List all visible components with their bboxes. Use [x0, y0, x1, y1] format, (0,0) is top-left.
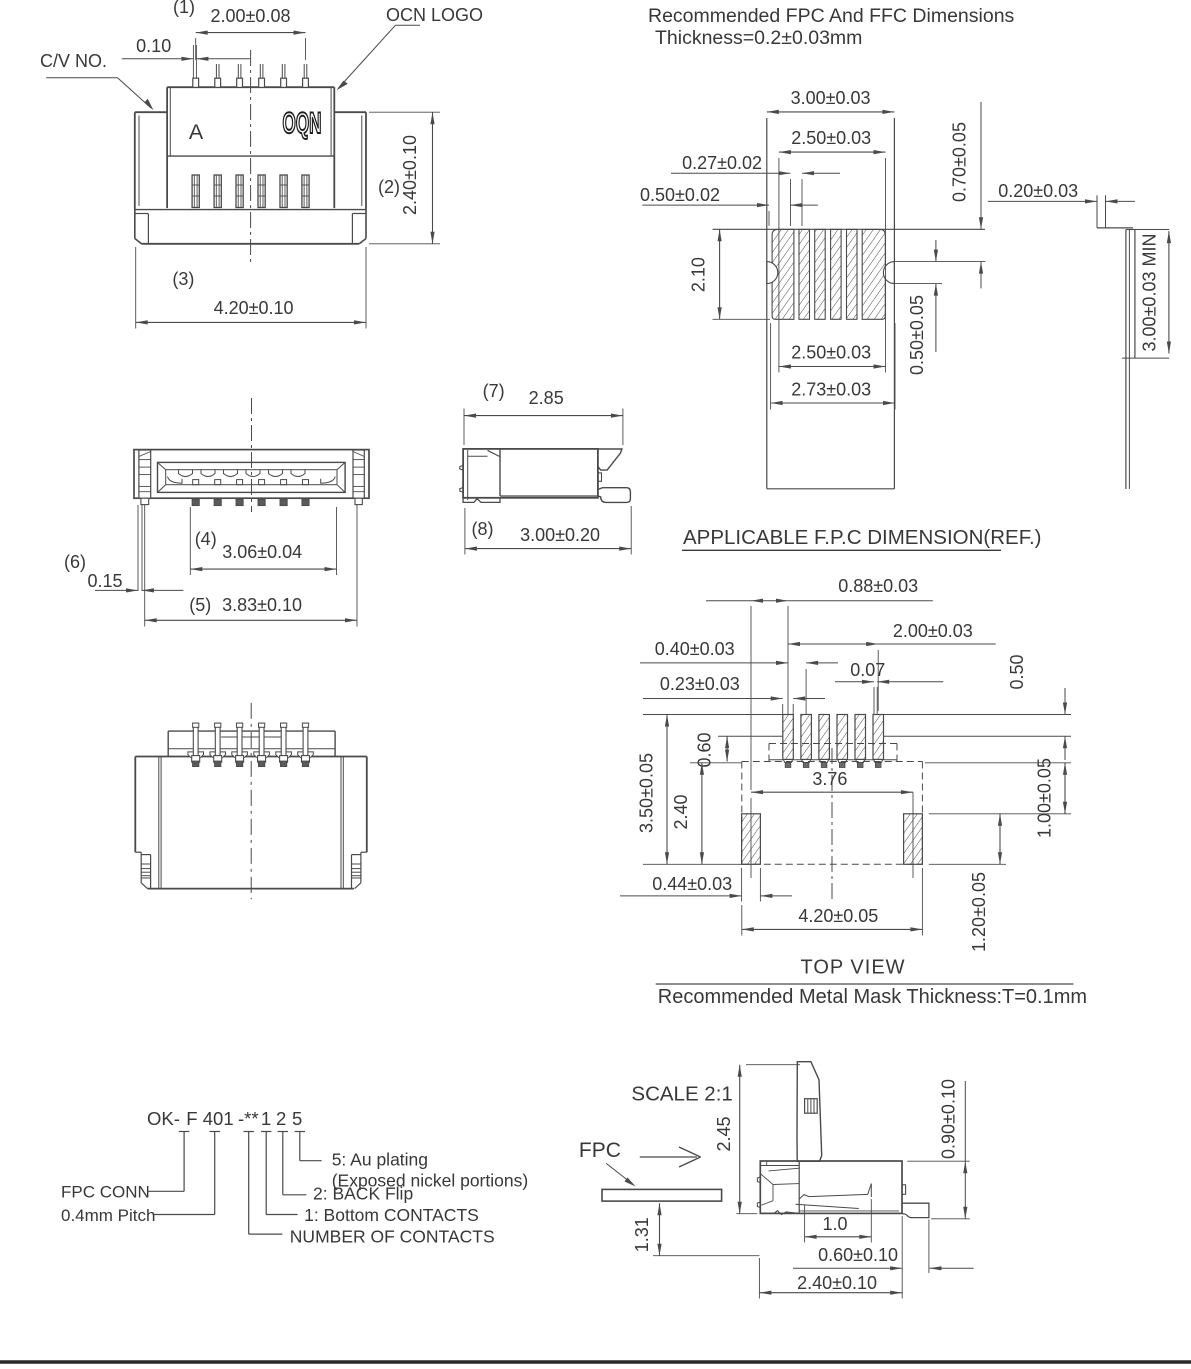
svg-text:1: Bottom CONTACTS: 1: Bottom CONTACTS [304, 1205, 479, 1225]
svg-text:0.50±0.02: 0.50±0.02 [640, 185, 720, 205]
svg-text:(7): (7) [483, 381, 505, 401]
svg-text:SCALE 2:1: SCALE 2:1 [631, 1082, 732, 1105]
svg-text:0.90±0.10: 0.90±0.10 [939, 1079, 959, 1159]
svg-text:3.06±0.04: 3.06±0.04 [222, 542, 302, 562]
svg-text:3.50±0.05: 3.50±0.05 [637, 753, 657, 833]
svg-text:3.00±0.03: 3.00±0.03 [791, 88, 871, 108]
svg-text:Recommended Metal Mask Thickne: Recommended Metal Mask Thickness:T=0.1mm [658, 986, 1087, 1008]
svg-text:0.15: 0.15 [87, 571, 122, 591]
svg-text:TOP VIEW: TOP VIEW [800, 957, 905, 979]
svg-text:1: 1 [261, 1108, 271, 1129]
svg-text:FPC CONN: FPC CONN [61, 1183, 150, 1202]
svg-text:F 401: F 401 [186, 1108, 233, 1129]
svg-text:2.40: 2.40 [671, 794, 691, 829]
svg-text:0.88±0.03: 0.88±0.03 [838, 576, 918, 596]
svg-text:0.60: 0.60 [694, 732, 714, 767]
svg-text:3.00±0.20: 3.00±0.20 [520, 525, 600, 545]
svg-text:2: 2 [276, 1108, 286, 1129]
svg-text:0.50±0.05: 0.50±0.05 [907, 295, 927, 375]
svg-text:0.27±0.02: 0.27±0.02 [682, 153, 762, 173]
svg-text:Recommended FPC And FFC Dimens: Recommended FPC And FFC Dimensions [648, 5, 1015, 27]
svg-text:C/V NO.: C/V NO. [40, 51, 107, 71]
svg-text:0.20±0.03: 0.20±0.03 [998, 181, 1078, 201]
svg-text:0.70±0.05: 0.70±0.05 [949, 122, 969, 202]
svg-text:1.0: 1.0 [822, 1214, 847, 1234]
svg-text:OCN LOGO: OCN LOGO [386, 5, 483, 25]
svg-text:0.50: 0.50 [1007, 654, 1027, 689]
svg-text:1.20±0.05: 1.20±0.05 [969, 872, 989, 952]
svg-text:1.00±0.05: 1.00±0.05 [1035, 758, 1055, 838]
svg-text:(4): (4) [195, 529, 217, 549]
svg-text:2.50±0.03: 2.50±0.03 [791, 343, 871, 363]
svg-text:2.40±0.10: 2.40±0.10 [797, 1273, 877, 1293]
svg-text:1.31: 1.31 [632, 1217, 652, 1252]
svg-text:3.00±0.03 MIN: 3.00±0.03 MIN [1140, 234, 1160, 352]
svg-text:Thickness=0.2±0.03mm: Thickness=0.2±0.03mm [655, 27, 862, 49]
svg-text:APPLICABLE F.P.C DIMENSION(RE: APPLICABLE F.P.C DIMENSION(REF.) [683, 526, 1041, 549]
svg-text:NUMBER OF CONTACTS: NUMBER OF CONTACTS [290, 1227, 495, 1247]
svg-text:(5): (5) [189, 595, 211, 615]
svg-text:0.23±0.03: 0.23±0.03 [660, 674, 740, 694]
svg-text:4.20±0.10: 4.20±0.10 [214, 298, 294, 318]
svg-text:3.83±0.10: 3.83±0.10 [222, 595, 302, 615]
svg-text:FPC: FPC [579, 1139, 621, 1162]
svg-text:2.45: 2.45 [714, 1116, 734, 1151]
svg-text:0.60±0.10: 0.60±0.10 [818, 1245, 898, 1265]
svg-text:2: BACK Flip: 2: BACK Flip [313, 1184, 413, 1204]
svg-text:(3): (3) [172, 269, 194, 289]
svg-text:0.10: 0.10 [136, 36, 171, 56]
svg-text:A: A [189, 120, 204, 144]
svg-text:0.40±0.03: 0.40±0.03 [655, 639, 735, 659]
svg-text:3.76: 3.76 [812, 769, 847, 789]
svg-text:2.10: 2.10 [689, 257, 709, 292]
svg-text:(8): (8) [472, 519, 494, 539]
svg-text:2.00±0.03: 2.00±0.03 [893, 621, 973, 641]
svg-text:0.07: 0.07 [850, 660, 885, 680]
svg-text:2.73±0.03: 2.73±0.03 [791, 380, 871, 400]
svg-text:5: Au plating: 5: Au plating [332, 1150, 428, 1170]
svg-text:0.4mm Pitch: 0.4mm Pitch [61, 1206, 155, 1225]
svg-text:2.50±0.03: 2.50±0.03 [791, 128, 871, 148]
svg-text:2.00±0.08: 2.00±0.08 [211, 6, 291, 26]
svg-text:5: 5 [292, 1108, 302, 1129]
svg-text:2.40±0.10: 2.40±0.10 [400, 135, 420, 215]
svg-text:4.20±0.05: 4.20±0.05 [798, 906, 878, 926]
svg-text:0.44±0.03: 0.44±0.03 [652, 874, 732, 894]
svg-text:OQN: OQN [283, 107, 322, 140]
svg-text:(2): (2) [378, 177, 400, 197]
svg-text:(6): (6) [64, 552, 86, 572]
svg-text:(1): (1) [173, 0, 195, 17]
svg-text:-**: -** [238, 1108, 259, 1129]
svg-text:OK-: OK- [147, 1108, 180, 1129]
svg-text:2.85: 2.85 [529, 388, 564, 408]
